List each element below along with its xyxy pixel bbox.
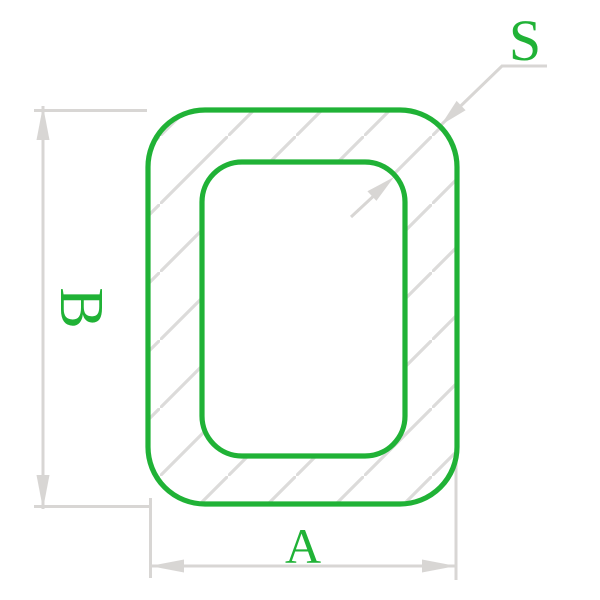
a-arrow-right-icon [422, 560, 456, 573]
profile-diagram-svg: S A B [0, 0, 600, 600]
wall-hatch-fill [148, 110, 457, 504]
tube-cross-section-diagram: S A B [0, 0, 600, 600]
b-arrow-down-icon [37, 475, 50, 509]
width-dimension-label: A [285, 518, 321, 574]
s-leader-line [441, 66, 547, 125]
inner-profile-contour [202, 162, 405, 456]
wall-thickness-label: S [509, 8, 541, 73]
height-dimension-label: B [47, 287, 115, 328]
a-arrow-left-icon [150, 560, 184, 573]
